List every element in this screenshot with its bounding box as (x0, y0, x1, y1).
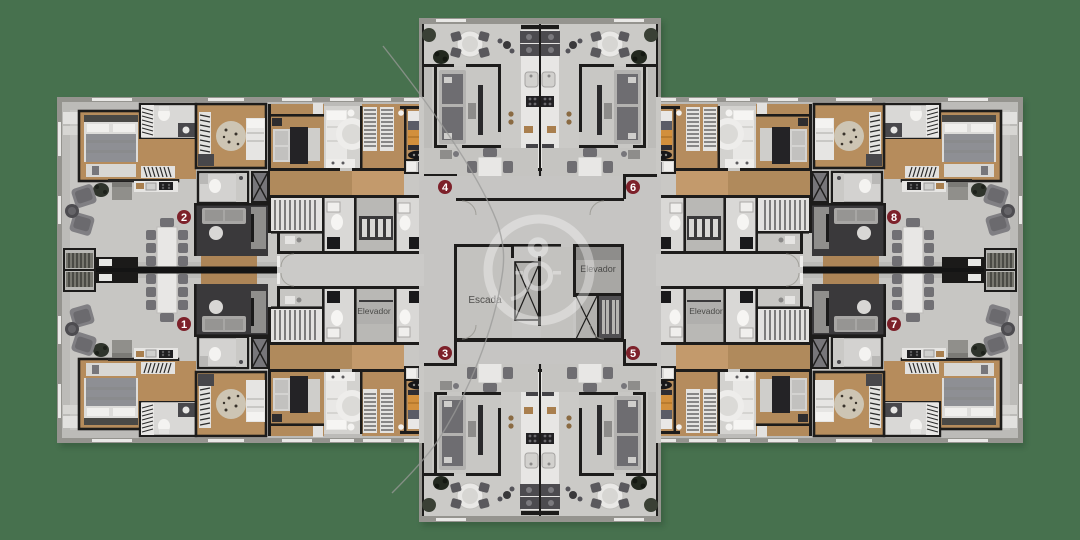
svg-text:Elevador: Elevador (357, 306, 391, 316)
svg-text:1: 1 (181, 319, 187, 331)
svg-text:2: 2 (181, 212, 187, 224)
svg-text:8: 8 (891, 212, 897, 224)
svg-text:3: 3 (442, 348, 448, 360)
svg-text:6: 6 (630, 182, 636, 194)
svg-text:4: 4 (442, 182, 449, 194)
svg-text:7: 7 (891, 319, 897, 331)
svg-text:Elevador: Elevador (689, 306, 723, 316)
svg-text:5: 5 (630, 348, 636, 360)
